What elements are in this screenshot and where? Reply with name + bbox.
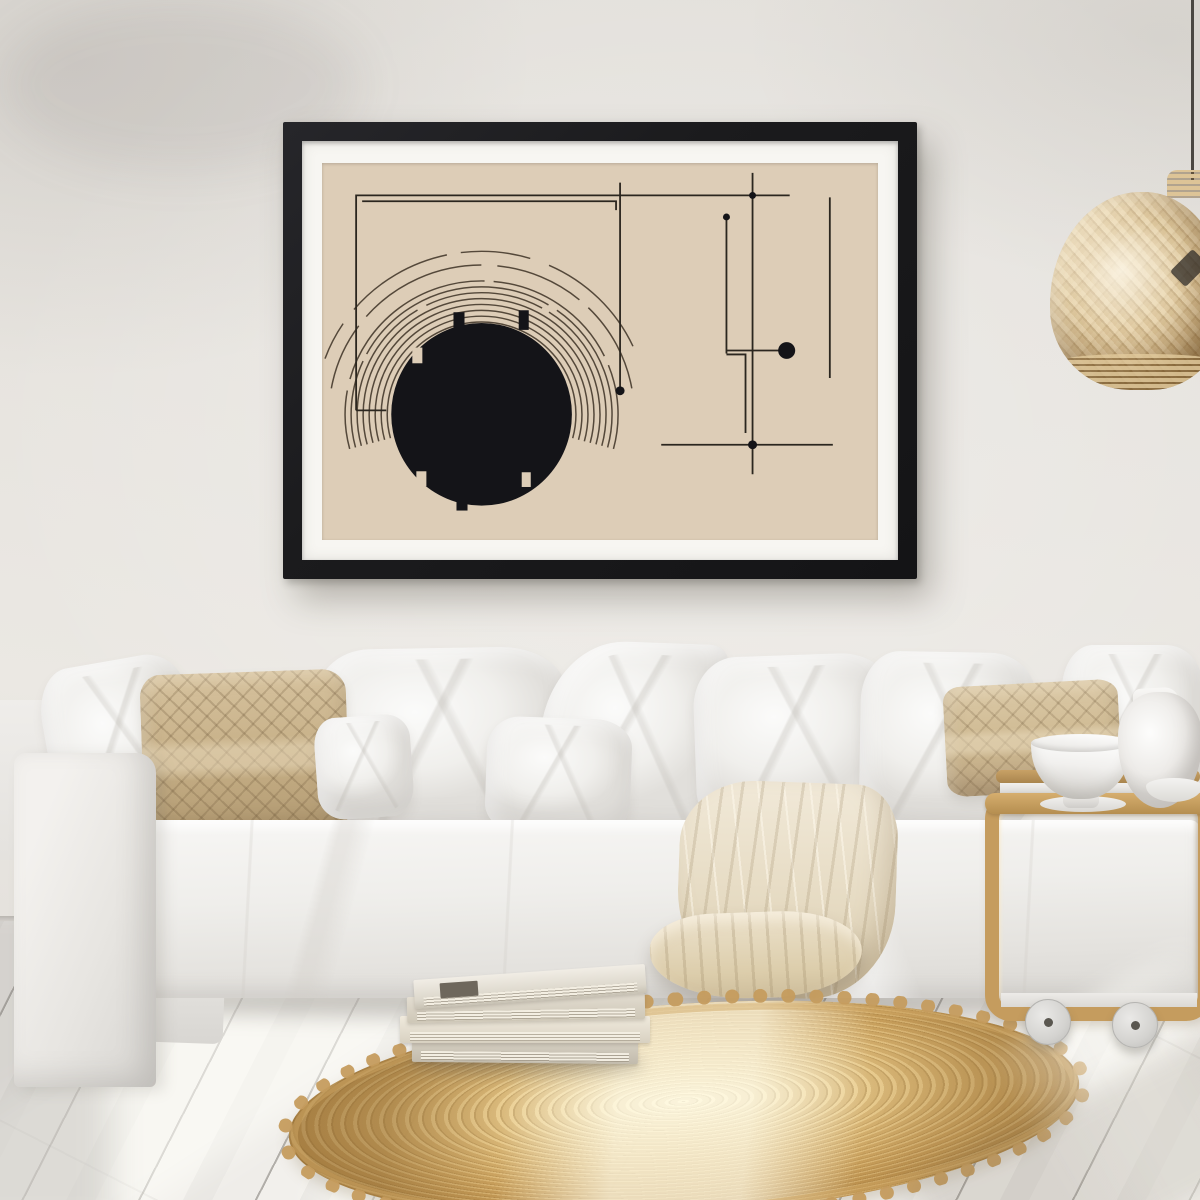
book-pages <box>421 1051 629 1062</box>
book-pages <box>410 1032 640 1041</box>
wall-floor-junction <box>0 916 1200 921</box>
lamp-cord <box>1191 0 1194 184</box>
living-room-photo <box>0 0 1200 1200</box>
abstract-line-art <box>322 163 878 540</box>
floor-shadow <box>0 916 110 1200</box>
poster-frame <box>283 122 917 579</box>
poster-artwork <box>322 163 878 540</box>
book-pages <box>417 1008 636 1021</box>
book-cover-label <box>440 981 479 999</box>
book-stack <box>398 972 654 1076</box>
poster-mat <box>302 141 898 560</box>
lamp-neck <box>1167 170 1200 198</box>
